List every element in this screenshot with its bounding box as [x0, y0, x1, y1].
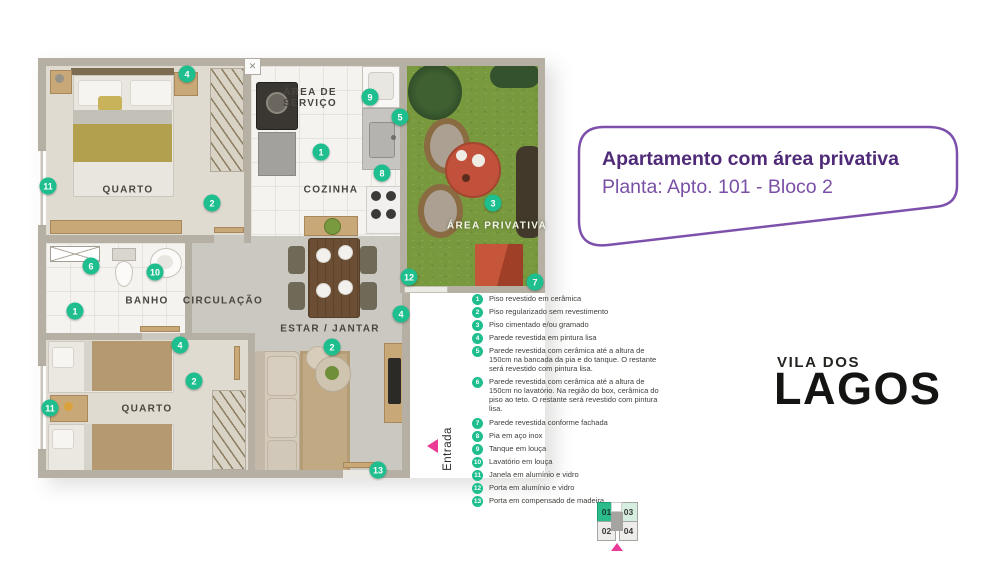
wall-bedroom1-kitchen [244, 58, 251, 243]
legend-number-badge: 7 [472, 418, 483, 429]
label-bath: BANHO [125, 296, 168, 307]
legend-item-text: Parede revestida em pintura lisa [489, 333, 597, 343]
plan-marker-7: 7 [527, 274, 544, 291]
lamp [55, 74, 64, 83]
plate [338, 245, 353, 260]
dining-chair [360, 246, 377, 274]
bed-sheet-fold [84, 424, 92, 470]
table-plate [456, 150, 467, 161]
legend-item-text: Piso revestido em cerâmica [489, 294, 581, 304]
legend-item-text: Tanque em louça [489, 444, 546, 454]
plan-subtitle: Planta: Apto. 101 - Bloco 2 [602, 176, 833, 199]
unit-map-notch [611, 502, 622, 512]
legend-item-1: 1Piso revestido em cerâmica [472, 294, 672, 305]
legend-item-5: 5Parede revestida com cerâmica até a alt… [472, 346, 672, 373]
legend-number-badge: 12 [472, 483, 483, 494]
burner [371, 191, 381, 201]
plan-marker-2: 2 [204, 195, 221, 212]
plan-marker-13: 13 [370, 462, 387, 479]
garden-table [445, 142, 501, 198]
door-leaf-bedroom2 [234, 346, 240, 380]
bed-sheet-fold [73, 110, 172, 124]
legend-number-badge: 2 [472, 307, 483, 318]
dresser [50, 220, 182, 234]
brand-name-bottom: LAGOS [774, 366, 942, 411]
plan-marker-4: 4 [172, 337, 189, 354]
door-leaf-bath [140, 326, 180, 332]
toilet-tank [112, 248, 136, 261]
faucet [391, 135, 396, 140]
legend-number-badge: 4 [472, 333, 483, 344]
wall-kitchen-garden [400, 58, 407, 290]
legend-item-7: 7Parede revestida conforme fachada [472, 418, 672, 429]
label-service: ÁREA DE SERVIÇO [275, 87, 345, 109]
legend-number-badge: 5 [472, 346, 483, 357]
lamp [64, 402, 73, 411]
legend-number-badge: 8 [472, 431, 483, 442]
wall-top [38, 58, 545, 66]
label-living: ESTAR / JANTAR [280, 324, 380, 335]
plan-marker-11: 11 [42, 400, 59, 417]
burner [386, 209, 396, 219]
plan-marker-10: 10 [147, 264, 164, 281]
legend-item-10: 10Lavatório em louça [472, 457, 672, 468]
plate [316, 248, 331, 263]
label-hall: CIRCULAÇÃO [183, 296, 263, 307]
pillow [52, 347, 74, 368]
door-leaf-bedroom1 [214, 227, 244, 233]
wardrobe [212, 390, 246, 470]
legend-item-text: Piso regularizado sem revestimento [489, 307, 608, 317]
legend-item-text: Lavatório em louça [489, 457, 552, 467]
plant [325, 366, 339, 380]
plan-marker-2: 2 [186, 373, 203, 390]
bed-blanket [92, 424, 172, 470]
brand-logo: VILA DOS LAGOS [696, 344, 966, 424]
plan-title: Apartamento com área privativa [602, 148, 899, 171]
logo-pink-shape [697, 376, 739, 414]
table-item [462, 174, 470, 182]
legend-item-11: 11Janela em alumínio e vidro [472, 470, 672, 481]
legend-item-text: Pia em aço inox [489, 431, 542, 441]
unit-position-map: 01 03 02 04 [592, 498, 644, 552]
plan-marker-4: 4 [393, 306, 410, 323]
sofa-chaise [267, 440, 297, 472]
legend-item-text: Janela em alumínio e vidro [489, 470, 579, 480]
plant [324, 218, 341, 235]
plan-marker-11: 11 [40, 178, 57, 195]
plan-marker-1: 1 [313, 144, 330, 161]
bed-blanket [73, 124, 172, 162]
wardrobe [210, 68, 244, 172]
plan-marker-6: 6 [83, 258, 100, 275]
unit-map-entry-icon [611, 543, 623, 551]
dining-chair [288, 246, 305, 274]
legend: 1Piso revestido em cerâmica2Piso regular… [472, 294, 672, 509]
legend-item-6: 6Parede revestida com cerâmica até a alt… [472, 377, 672, 413]
tv [388, 358, 401, 404]
wall-bedroom2-right [248, 340, 255, 478]
legend-item-text: Piso cimentado e/ou gramado [489, 320, 589, 330]
plan-marker-5: 5 [392, 109, 409, 126]
legend-item-text: Porta em alumínio e vidro [489, 483, 574, 493]
dining-chair [288, 282, 305, 310]
sofa-cushion [267, 356, 297, 396]
plan-marker-8: 8 [374, 165, 391, 182]
legend-number-badge: 1 [472, 294, 483, 305]
glass-door-garden [404, 286, 448, 293]
legend-number-badge: 13 [472, 496, 483, 507]
label-bedroom2: QUARTO [122, 404, 173, 415]
plan-marker-4: 4 [179, 66, 196, 83]
bed-headboard [71, 68, 174, 75]
unit-map-core [611, 512, 623, 531]
legend-item-text: Parede revestida com cerâmica até a altu… [489, 377, 665, 413]
palm-tree [408, 64, 462, 120]
burner [371, 209, 381, 219]
plan-marker-1: 1 [67, 303, 84, 320]
legend-item-3: 3Piso cimentado e/ou gramado [472, 320, 672, 331]
legend-item-4: 4Parede revestida em pintura lisa [472, 333, 672, 344]
burner [386, 191, 396, 201]
label-kitchen: COZINHA [304, 185, 359, 196]
sofa-cushion [267, 398, 297, 438]
table-plate [472, 154, 485, 167]
title-card: Apartamento com área privativa Planta: A… [576, 124, 960, 254]
plate [338, 280, 353, 295]
entrance-arrow-icon [427, 439, 438, 453]
garden-ottoman [475, 244, 523, 290]
plan-marker-3: 3 [485, 195, 502, 212]
legend-item-2: 2Piso regularizado sem revestimento [472, 307, 672, 318]
wall-garden-right [538, 58, 545, 293]
plan-marker-2: 2 [324, 339, 341, 356]
legend-number-badge: 3 [472, 320, 483, 331]
flyer-page: ✕ QUARTO ÁREA DE SERVIÇO COZINHA BANHO C… [0, 0, 1000, 562]
legend-number-badge: 11 [472, 470, 483, 481]
legend-item-12: 12Porta em alumínio e vidro [472, 483, 672, 494]
sink-basin [369, 122, 395, 158]
cushion [98, 96, 122, 111]
plate [316, 283, 331, 298]
legend-item-text: Parede revestida conforme fachada [489, 418, 608, 428]
vent-shaft: ✕ [244, 58, 261, 75]
garden-bush [490, 64, 540, 88]
floor-plan: ✕ QUARTO ÁREA DE SERVIÇO COZINHA BANHO C… [38, 58, 545, 478]
bed-sheet-fold [84, 341, 92, 391]
legend-item-text: Parede revestida com cerâmica até a altu… [489, 346, 665, 373]
plan-marker-9: 9 [362, 89, 379, 106]
legend-number-badge: 9 [472, 444, 483, 455]
pillow [130, 80, 172, 106]
logo-pink-small-shape [742, 379, 766, 413]
legend-item-9: 9Tanque em louça [472, 444, 672, 455]
logo-purple-shape [699, 347, 765, 378]
legend-item-8: 8Pia em aço inox [472, 431, 672, 442]
label-bedroom1: QUARTO [103, 185, 154, 196]
label-garden: ÁREA PRIVATIVA [447, 221, 547, 232]
entrance-label: Entrada [442, 409, 458, 489]
legend-number-badge: 10 [472, 457, 483, 468]
door-opening [214, 235, 244, 243]
plan-marker-12: 12 [401, 269, 418, 286]
bed-blanket [92, 341, 172, 391]
legend-item-text: Porta em compensado de madeira [489, 496, 604, 506]
wall-bath-right [185, 243, 192, 340]
dining-chair [360, 282, 377, 310]
pillow [52, 429, 74, 449]
laundry-cabinet [258, 132, 296, 176]
legend-number-badge: 6 [472, 377, 483, 388]
